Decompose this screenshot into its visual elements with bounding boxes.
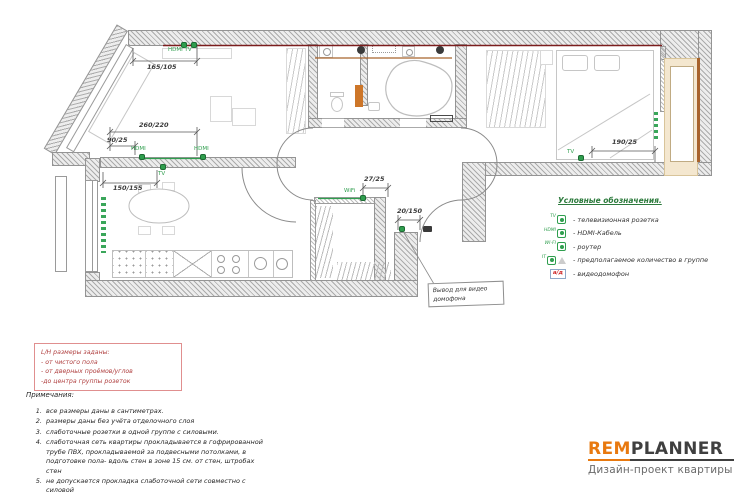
- intercom-panel: [423, 226, 432, 232]
- dim-20-150: 20/150: [397, 208, 422, 215]
- stove: [212, 251, 249, 277]
- socket-hdmi-left: [139, 154, 145, 160]
- dim-note-line: L/H размеры заданы:: [41, 348, 175, 358]
- dim-260-220: 260/220: [139, 122, 169, 129]
- hdmi-socket-icon: HDMI: [544, 228, 556, 233]
- kitchen-radiator: [101, 197, 106, 253]
- hall-coat-rack-left: [316, 206, 333, 278]
- chair: [162, 182, 175, 191]
- dim-190-25: 190/25: [612, 139, 637, 146]
- notes-list: 1. все размеры даны в сантиметрах. 2. ра…: [30, 407, 268, 497]
- wall-bath-left: [308, 44, 318, 128]
- boiler: [436, 46, 444, 54]
- wc-door-leaf: [355, 85, 363, 107]
- brand-name: REMPLANNER: [588, 441, 738, 458]
- socket-wifi: [360, 195, 366, 201]
- counter-unit-dots: [146, 251, 174, 277]
- legend-item-tv: TV - телевизионная розетка: [536, 213, 750, 227]
- dim-note-line: -до центра группы розеток: [41, 377, 175, 387]
- label-tv-bedroom: TV: [567, 150, 574, 156]
- chair: [138, 226, 151, 235]
- shelf: [372, 45, 396, 53]
- hall-coat-rack-bottom: [337, 262, 391, 280]
- legend-label: - видеодомофон: [573, 270, 629, 278]
- bathtub: [386, 61, 452, 116]
- wall-entry-pillar: [462, 162, 486, 242]
- coffee-table: [232, 108, 256, 126]
- socket-tv-kitchen: [160, 164, 166, 170]
- brand-subtitle: Дизайн-проект квартиры: [588, 464, 738, 476]
- intercom-callout: Вывод для видео домофона: [428, 281, 505, 308]
- socket-hdmi-right: [200, 154, 206, 160]
- armchair: [210, 96, 232, 122]
- note-item: 2. размеры даны без учёта отделочного сл…: [30, 417, 268, 426]
- note-item: 3. слаботочные розетки в одной группе с …: [30, 428, 268, 437]
- kitchen-window: [85, 180, 98, 272]
- bedroom-wardrobe: [486, 50, 546, 128]
- legend-label: - HDMI-Кабель: [573, 229, 622, 237]
- tv-socket-icon: TV: [550, 214, 556, 219]
- washing-machine: [319, 45, 333, 58]
- wall-hall-top: [314, 197, 378, 204]
- note-item: 4. слаботочная сеть квартиры прокладывае…: [30, 438, 268, 476]
- pillow: [594, 55, 620, 71]
- legend-item-wifi: WI-FI - роутер: [536, 240, 750, 254]
- socket-tv-bedroom: [578, 155, 584, 161]
- legend-label: - роутер: [573, 243, 601, 251]
- wall-bath-right: [455, 44, 467, 128]
- kitchen-sink: [249, 251, 274, 277]
- label-hdmi-left: HDMI: [131, 147, 146, 153]
- label-tv-kitchen: TV: [158, 172, 165, 178]
- nightstand: [540, 50, 553, 65]
- dim-27-25: 27/25: [364, 176, 384, 183]
- label-hdmi-tv: HDMI TV: [168, 48, 192, 54]
- dim-165-105: 165/105: [147, 64, 177, 71]
- dryer: [402, 46, 415, 57]
- wall-bottom: [85, 280, 418, 297]
- bath-sink: [368, 102, 380, 111]
- wifi-socket-icon: WI-FI: [545, 241, 556, 246]
- chair: [162, 226, 175, 235]
- balcony-floor: [670, 66, 694, 162]
- legend-title: Условные обозначения.: [558, 196, 750, 205]
- dining-table: [129, 189, 189, 223]
- bedroom-radiator: [654, 112, 658, 142]
- note-item: 1. все размеры даны в сантиметрах.: [30, 407, 268, 416]
- remplanner-logo: REMPLANNER Дизайн-проект квартиры: [588, 441, 738, 476]
- living-wardrobe: [286, 48, 306, 134]
- legend-label: - телевизионная розетка: [573, 216, 659, 224]
- bath-door-gap-right: [400, 118, 426, 128]
- legend-item-group: IT - предполагаемое количество в группе: [536, 254, 750, 268]
- wall-kitchen-left-top: [85, 158, 100, 182]
- legend-item-intercom: а/д - видеодомофон: [536, 267, 750, 281]
- brand-planner: PLANNER: [631, 439, 723, 459]
- legend: Условные обозначения. TV - телевизионная…: [536, 196, 750, 281]
- wall-top: [128, 30, 712, 46]
- wall-right: [698, 30, 712, 176]
- balcony-glazing: [697, 58, 700, 162]
- wall-hall-right: [394, 232, 418, 281]
- outer-sill: [55, 176, 67, 272]
- socket-intercom: [399, 226, 405, 232]
- notes-title: Примечания:: [26, 391, 74, 399]
- toilet-bowl: [331, 97, 343, 112]
- boiler: [357, 46, 365, 54]
- dim-90-25: 90/25: [107, 137, 127, 144]
- brand-rem: REM: [588, 439, 631, 459]
- kitchen-counter: [112, 250, 293, 278]
- label-hdmi-right: HDMI: [194, 147, 209, 153]
- bath-door-gap-left: [322, 118, 344, 128]
- dim-note-line: - от дверных проёмов/углов: [41, 367, 175, 377]
- dim-150-155: 150/155: [113, 185, 143, 192]
- door-arc-entrance: [420, 200, 462, 242]
- label-wifi: WiFi: [344, 189, 355, 195]
- wall-living-kitchen-divider: [100, 157, 296, 168]
- bath-mat: [430, 115, 453, 122]
- counter-unit-round: [274, 251, 292, 277]
- group-count-icon: [558, 257, 566, 264]
- design-sheet: HDMI TV HDMI HDMI TV WiFi TV 165/105 260…: [0, 0, 750, 498]
- dimension-note-box: L/H размеры заданы: - от чистого пола - …: [34, 343, 182, 391]
- brand-underline: [588, 459, 734, 461]
- dim-note-line: - от чистого пола: [41, 358, 175, 368]
- note-item: 5. не допускается прокладка слаботочной …: [30, 477, 268, 496]
- counter-unit-cross: [174, 251, 212, 277]
- door-arc-kitchen: [242, 168, 296, 222]
- pillow: [562, 55, 588, 71]
- it-socket-icon: IT: [542, 255, 546, 260]
- counter-unit-dots: [113, 251, 146, 277]
- intercom-icon: а/д: [550, 269, 566, 279]
- legend-item-hdmi: HDMI - HDMI-Кабель: [536, 227, 750, 241]
- legend-label: - предполагаемое количество в группе: [573, 256, 708, 264]
